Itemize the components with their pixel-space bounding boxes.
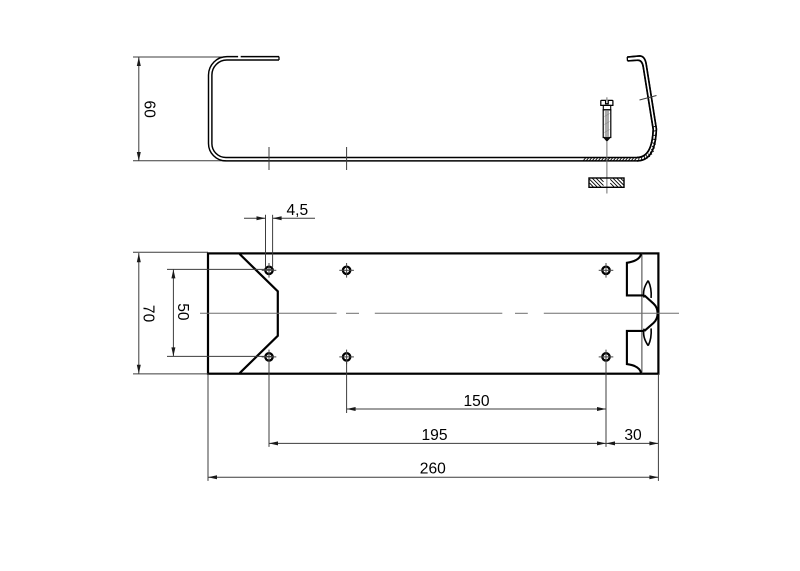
svg-text:4,5: 4,5 (286, 202, 308, 219)
svg-text:150: 150 (463, 393, 489, 410)
svg-text:70: 70 (139, 305, 156, 323)
svg-text:195: 195 (421, 427, 447, 444)
svg-text:60: 60 (141, 101, 158, 119)
svg-text:260: 260 (420, 461, 446, 478)
svg-text:30: 30 (624, 427, 642, 444)
svg-text:50: 50 (174, 303, 191, 321)
